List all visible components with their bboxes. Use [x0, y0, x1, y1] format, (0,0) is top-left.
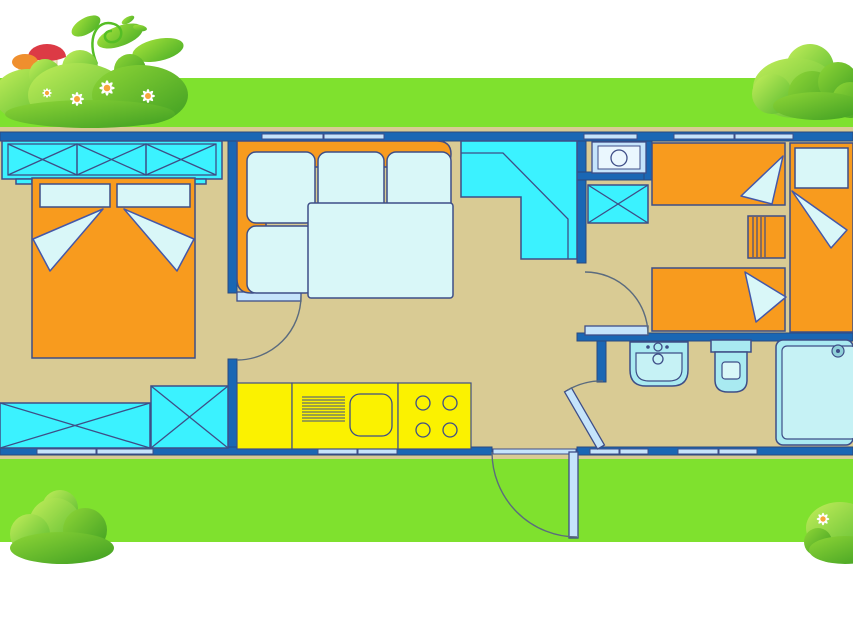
bedroom2-door-leaf — [585, 326, 648, 335]
pillow — [117, 184, 190, 207]
bush-base — [5, 100, 175, 128]
seat-cushion — [247, 226, 315, 293]
shower-drain-dot — [836, 349, 840, 353]
wardrobe-foot — [16, 179, 32, 184]
window — [358, 449, 397, 454]
faucet-dot-icon — [646, 345, 650, 349]
coffee-table — [308, 203, 453, 298]
window — [678, 449, 718, 454]
grass-strip-bottom — [0, 459, 853, 542]
stove-unit — [398, 383, 471, 449]
window — [584, 134, 637, 139]
bush-base — [10, 532, 114, 564]
floor-plan-illustration — [0, 0, 853, 619]
bathroom-door-stub-wall — [597, 341, 606, 382]
faucet-dot-icon — [665, 345, 669, 349]
window — [674, 134, 734, 139]
bedroom1-wall-lower — [228, 359, 237, 447]
window — [719, 449, 757, 454]
sink-unit — [292, 383, 398, 449]
shower-tray — [782, 346, 853, 439]
seat-cushion — [247, 152, 315, 223]
window — [590, 449, 619, 454]
window — [318, 449, 357, 454]
window — [620, 449, 648, 454]
toilet-seat — [722, 362, 740, 379]
kitchen — [237, 383, 471, 449]
window — [735, 134, 793, 139]
counter-section — [237, 383, 292, 449]
daisy-icon — [817, 513, 830, 526]
entrance-door-leaf — [569, 452, 578, 538]
bush-top-left — [0, 11, 188, 128]
window — [97, 449, 153, 454]
bedroom1-wall-upper — [228, 141, 237, 293]
entrance-threshold — [493, 449, 576, 454]
hallway-wall — [577, 141, 586, 263]
daisy-icon — [141, 89, 155, 103]
toilet-tank — [711, 340, 751, 352]
window — [324, 134, 384, 139]
daisy-icon — [99, 80, 114, 95]
window — [37, 449, 96, 454]
bush-top-right — [752, 44, 853, 120]
window — [262, 134, 323, 139]
washbasin-bowl — [636, 353, 682, 381]
daisy-icon — [70, 92, 84, 106]
daisy-icon — [42, 88, 52, 98]
floor-plan-svg — [0, 0, 853, 619]
pillow — [40, 184, 110, 207]
pillow — [795, 148, 848, 188]
